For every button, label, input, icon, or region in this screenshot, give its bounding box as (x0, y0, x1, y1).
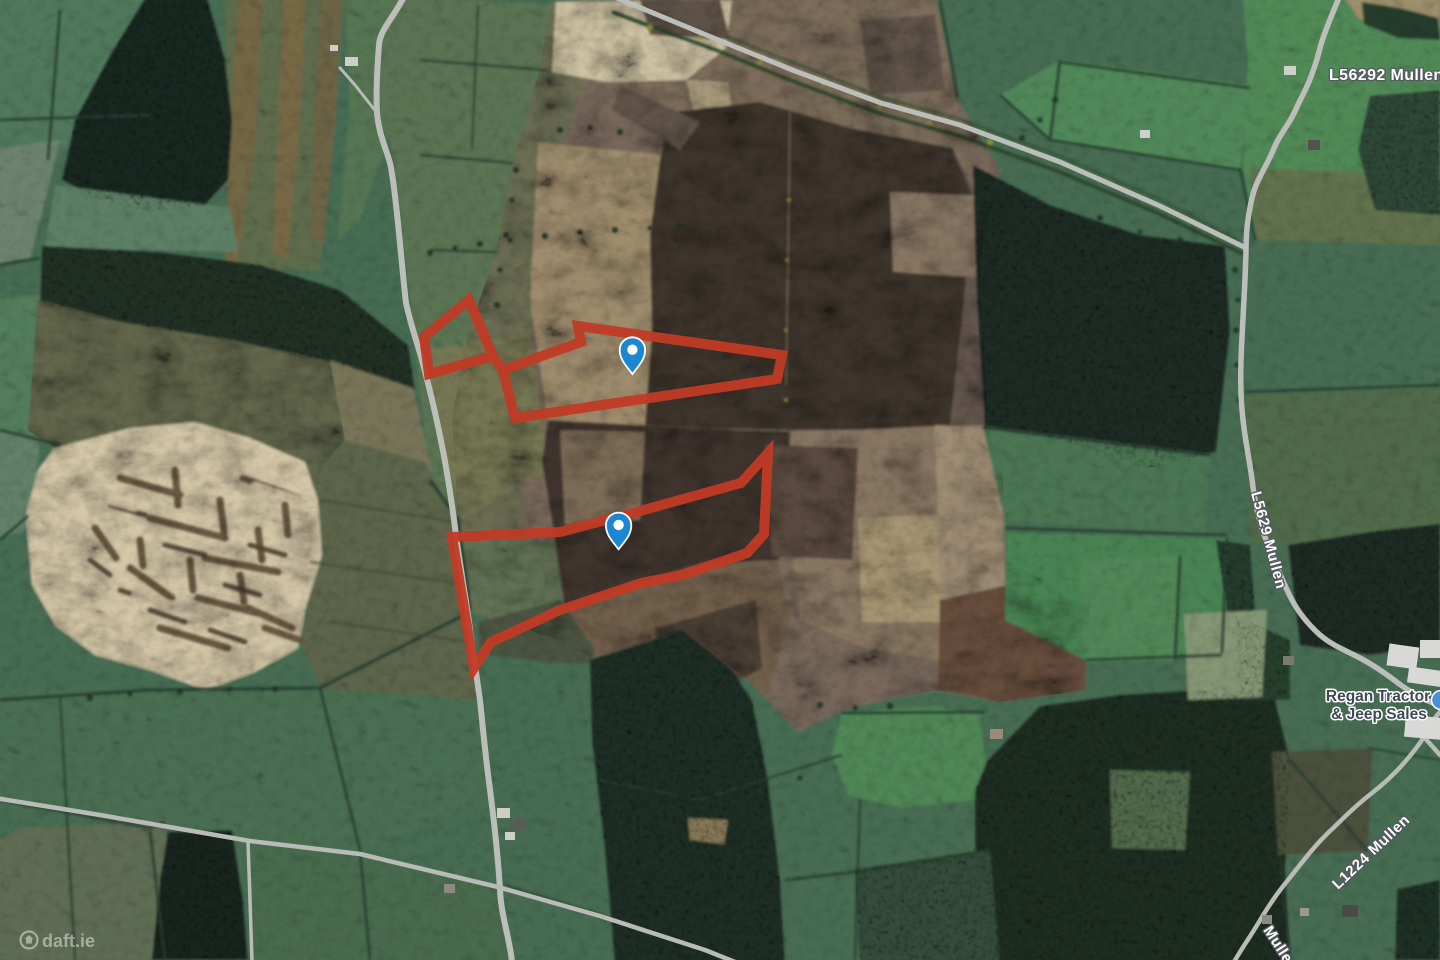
svg-text:& Jeep Sales: & Jeep Sales (1331, 706, 1427, 723)
svg-text:daft.ie: daft.ie (42, 931, 95, 951)
svg-text:Regan Tractor: Regan Tractor (1326, 688, 1430, 705)
svg-text:L56292 Mullen: L56292 Mullen (1329, 67, 1440, 84)
